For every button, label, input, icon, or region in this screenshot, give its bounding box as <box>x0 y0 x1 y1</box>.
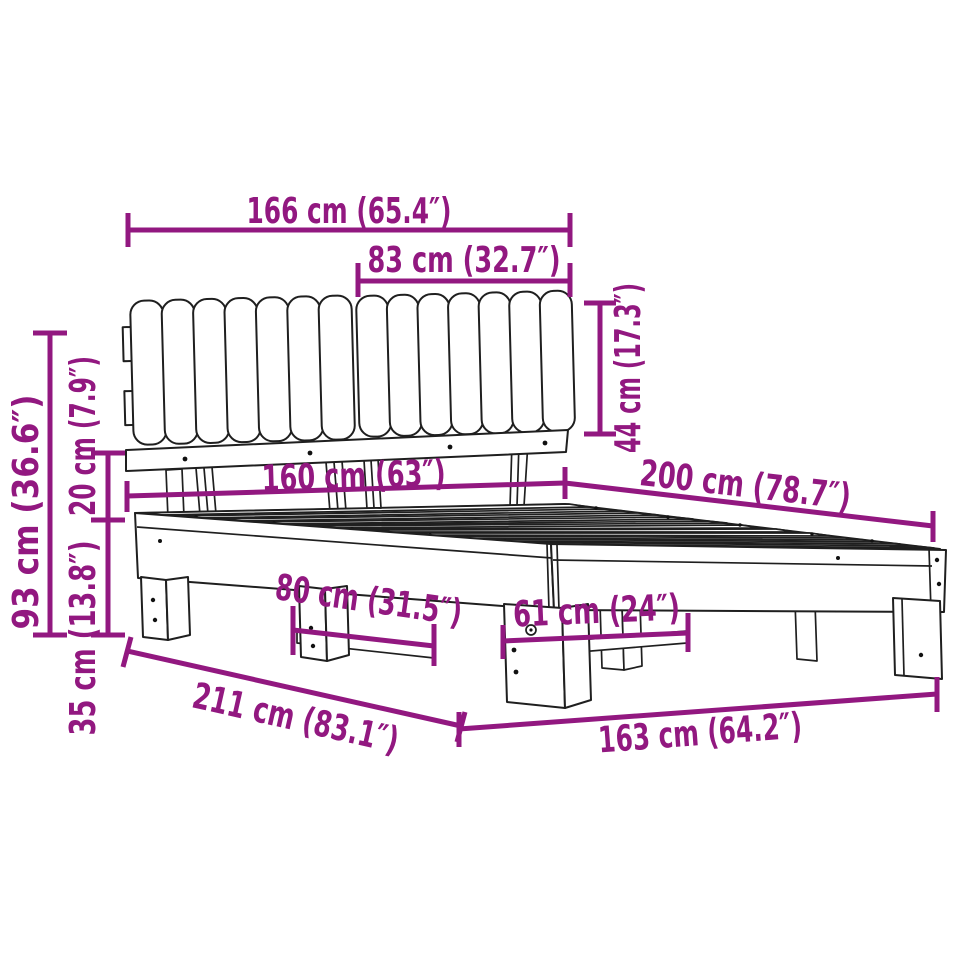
label-bed-width: 160 cm (63″) <box>261 453 446 500</box>
label-headboard-width: 166 cm (65.4″) <box>247 191 452 232</box>
bed-frame-dimension-diagram: 166 cm (65.4″) 83 cm (32.7″) 44 cm (17.3… <box>0 0 960 960</box>
label-gap-height: 20 cm (7.9″) <box>63 356 104 516</box>
headboard-cushions <box>122 289 575 445</box>
diagram-canvas: 166 cm (65.4″) 83 cm (32.7″) 44 cm (17.3… <box>0 0 960 960</box>
label-headboard-height: 93 cm (36.6″) <box>6 395 47 630</box>
label-cushion-width: 83 cm (32.7″) <box>368 240 561 281</box>
label-leg-span-length: 61 cm (24″) <box>512 587 681 635</box>
label-bed-length: 200 cm (78.7″) <box>638 453 853 518</box>
label-frame-height: 35 cm (13.8″) <box>63 541 104 736</box>
dimension-labels: 166 cm (65.4″) 83 cm (32.7″) 44 cm (17.3… <box>6 191 853 762</box>
label-base-length: 163 cm (64.2″) <box>597 706 803 762</box>
label-cushion-height: 44 cm (17.3″) <box>608 283 649 453</box>
